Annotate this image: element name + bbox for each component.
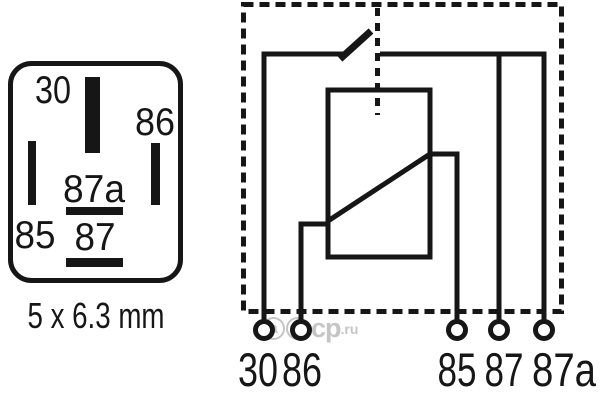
terminal-86-wire — [301, 224, 328, 321]
terminal-85-wire — [430, 154, 457, 321]
terminal-label-85: 85 — [438, 343, 477, 396]
terminal-circle-30 — [256, 322, 273, 339]
terminal-label-87a: 87a — [532, 343, 597, 396]
pin-blade-30 — [85, 77, 100, 153]
output-87a-wire — [380, 54, 544, 321]
switch-blade — [340, 31, 371, 59]
pin-label-87: 87 — [75, 216, 116, 259]
terminal-label-30: 30 — [238, 343, 278, 396]
pin-blade-87 — [66, 258, 123, 267]
terminal-label-87: 87 — [485, 343, 524, 396]
coil-diagonal — [328, 154, 430, 221]
pin-label-85: 85 — [15, 214, 56, 257]
pin-label-30: 30 — [35, 69, 71, 112]
terminal-circle-87 — [491, 322, 508, 339]
circuit-schematic-view — [244, 5, 562, 339]
relay-diagram-canvas: 30 86 87a 85 87 5 x 6.3 mm — [0, 0, 600, 400]
schematic-terminal-labels: 30 86 85 87 87a — [238, 343, 597, 396]
relay-housing-outline — [244, 5, 562, 312]
terminal-circle-85 — [449, 322, 466, 339]
terminal-label-86: 86 — [282, 343, 322, 396]
relay-diagram-page: a b cp .ru 30 86 87a 85 87 5 x 6.3 mm — [0, 0, 600, 400]
blade-size-label: 5 x 6.3 mm — [28, 295, 165, 336]
terminal-circle-87a — [536, 322, 553, 339]
terminal-circle-86 — [293, 322, 310, 339]
coil-outline — [328, 90, 430, 257]
pin-label-87a: 87a — [63, 168, 125, 211]
pin-blade-85 — [28, 141, 36, 205]
pin-blade-86 — [151, 143, 160, 205]
connector-pinout-view: 30 86 87a 85 87 5 x 6.3 mm — [11, 64, 181, 337]
pin-label-86: 86 — [135, 101, 175, 144]
